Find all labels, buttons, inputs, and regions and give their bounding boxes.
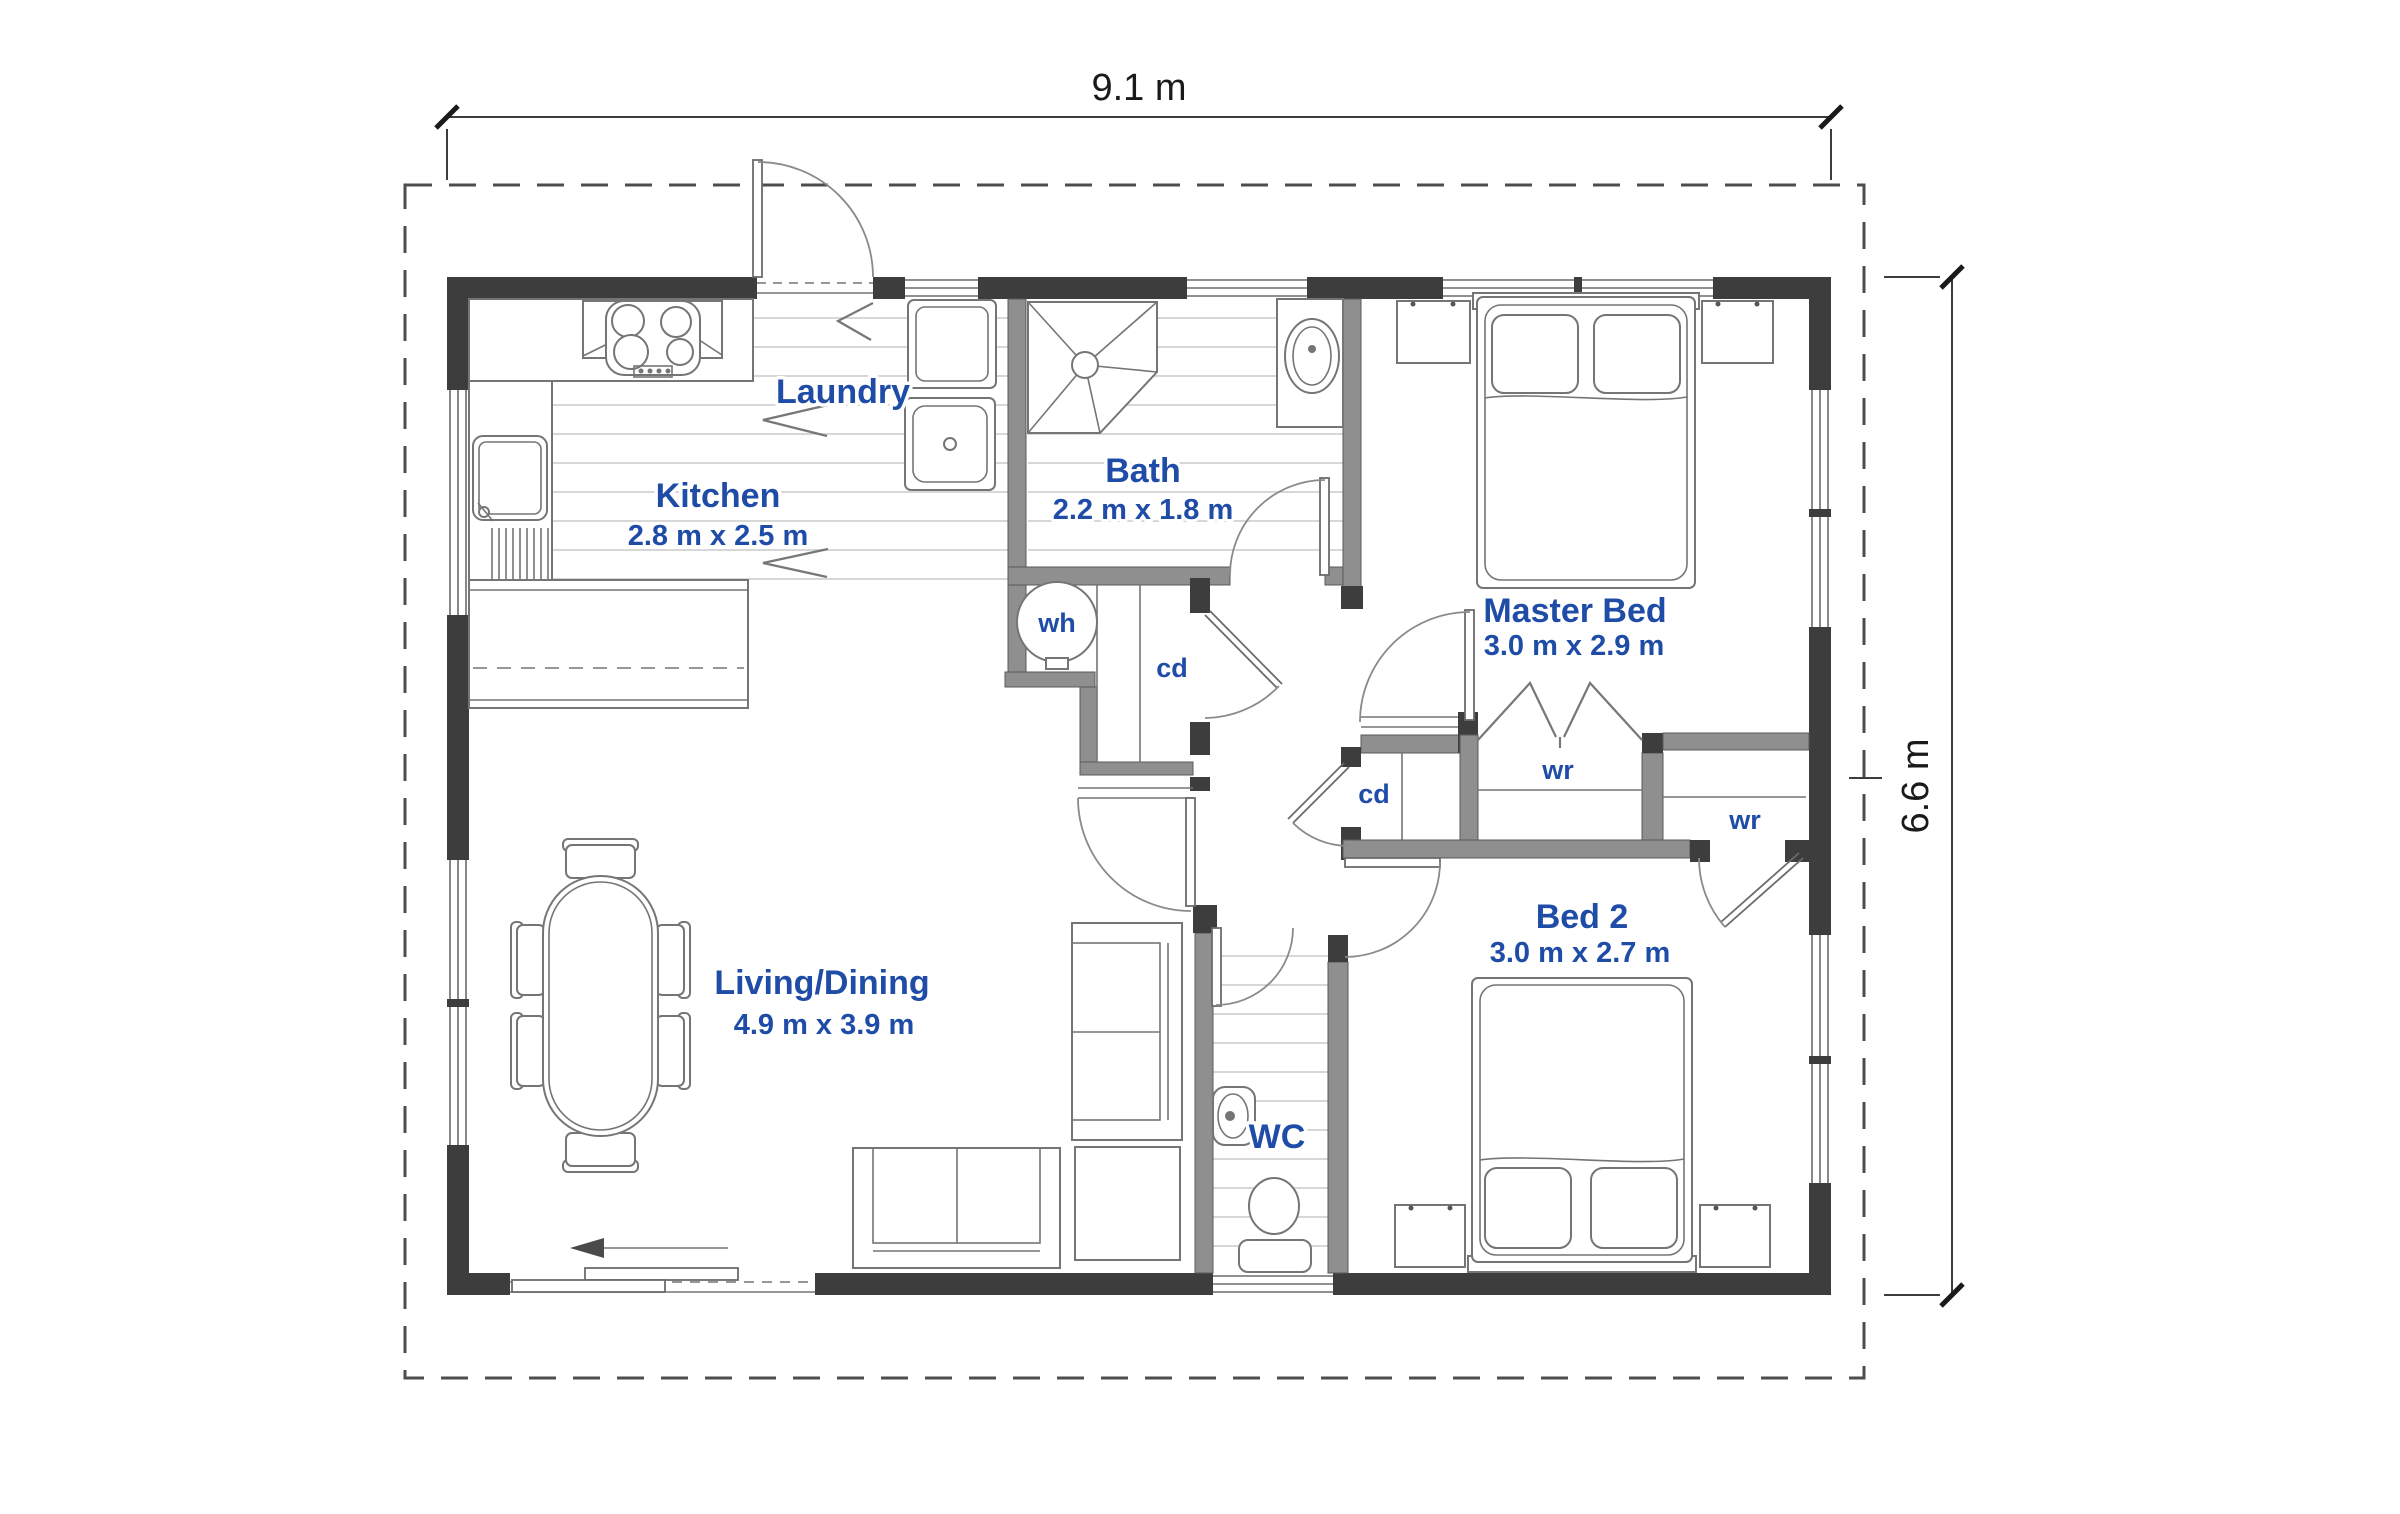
washing-machine [905,398,995,490]
window-wc [1213,1276,1333,1292]
window-bed2 [1809,935,1831,1183]
dining-chair [566,845,635,878]
bed2-door [1345,858,1440,957]
bath-vanity [1277,299,1343,427]
kitchen-peninsula [469,580,748,708]
dimension-top: 9.1 m [436,67,1842,180]
master-wardrobe-bifold [1478,683,1642,748]
window-laundry [905,280,978,296]
bed2-wardrobe-door [1699,853,1803,927]
entry-sliding-door [510,1238,815,1292]
window-kitchen [450,390,466,615]
bath-size: 2.2 m x 1.8 m [1053,494,1234,526]
dining-chair [656,1016,684,1086]
dining-set [511,839,690,1172]
living-dining-size: 4.9 m x 3.9 m [734,1009,915,1041]
bed2-furniture [1395,978,1770,1272]
bed2-wardrobe-label: wr [1728,805,1761,835]
dining-chair [517,925,545,995]
laundry-tub [908,300,996,388]
width-dimension-label: 9.1 m [1091,67,1186,109]
sofa-vertical [1072,923,1182,1140]
dining-chair [656,925,684,995]
entry-arrow [570,1238,604,1258]
master-bed-label: Master Bed [1483,592,1666,630]
nightstand [1397,301,1470,363]
window-master-right [1809,390,1831,627]
kitchen-size: 2.8 m x 2.5 m [628,520,809,552]
hall-cupboard-door [1205,611,1282,718]
bath-label: Bath [1105,452,1181,490]
water-heater-label: wh [1037,608,1076,638]
master-bed-size: 3.0 m x 2.9 m [1484,630,1665,662]
bed-cupboard-label: cd [1358,779,1390,809]
dining-chair [566,1133,635,1166]
master-bed-furniture [1397,293,1773,588]
hall-cupboard-label: cd [1156,653,1188,683]
nightstand [1700,1205,1770,1267]
sofa-corner [1075,1147,1180,1260]
living-hall-door [1078,798,1195,911]
back-door [753,160,873,293]
dining-chair [517,1016,545,1086]
kitchen-sink [473,436,547,521]
height-dimension-label: 6.6 m [1895,738,1937,833]
kitchen-label: Kitchen [656,477,781,515]
nightstand [1702,301,1773,363]
living-dining-label: Living/Dining [714,964,929,1002]
master-wardrobe-label: wr [1541,755,1574,785]
bed2-size: 3.0 m x 2.7 m [1490,937,1671,969]
bed-cupboard-door [1288,763,1349,846]
window-bath [1187,280,1307,296]
sofa-horizontal [853,1148,1060,1268]
master-bed-door [1360,610,1474,722]
laundry-label: Laundry [776,373,910,411]
wc-label: WC [1249,1118,1306,1156]
dining-table [543,876,658,1136]
nightstand [1395,1205,1465,1267]
dimension-right: 6.6 m [1884,266,1963,1306]
window-living [447,860,469,1145]
floor-plan: 9.1 m 6.6 m [0,0,2400,1514]
bed2-label: Bed 2 [1536,898,1629,936]
